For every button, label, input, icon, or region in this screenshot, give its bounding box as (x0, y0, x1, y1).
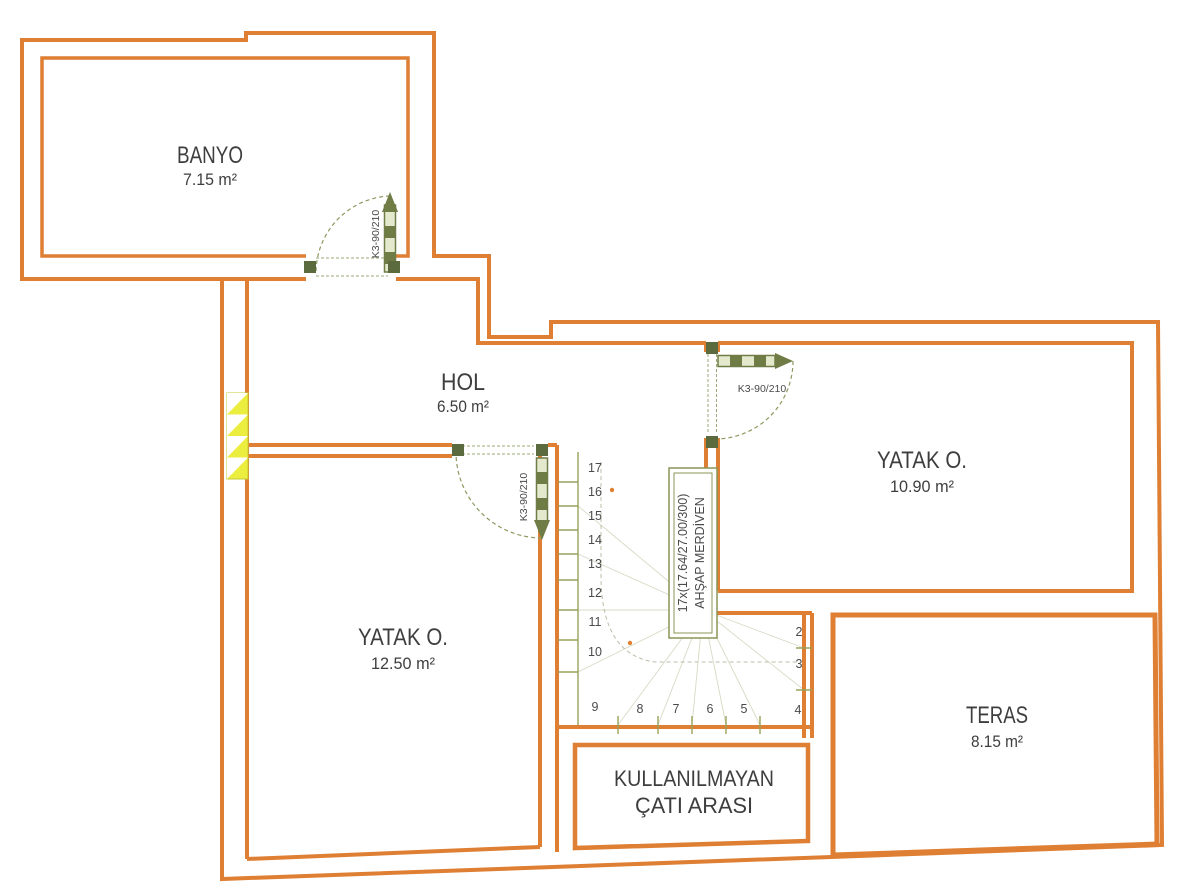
yatak-left-area: 12.50 m² (371, 654, 435, 673)
stair-spec-label: 17x(17.64/27.00/300) (676, 494, 690, 613)
stair-num: 8 (637, 702, 644, 716)
stair-num: 15 (588, 509, 602, 523)
door-post (452, 444, 464, 456)
floor-plan-page: 17x(17.64/27.00/300) AHŞAP MERDİVEN 17 1… (0, 0, 1200, 885)
yatak-right-door: K3-90/210 (706, 342, 793, 448)
banyo-door: K3-90/210 (304, 192, 400, 276)
shaft-hatch (227, 393, 248, 479)
floor-plan-svg: 17x(17.64/27.00/300) AHŞAP MERDİVEN 17 1… (0, 0, 1200, 885)
door-arrow-icon (382, 192, 398, 212)
stair-num: 7 (673, 702, 680, 716)
stair-num: 5 (741, 702, 748, 716)
stair-num: 9 (592, 700, 599, 714)
yatak-left-door-label: K3-90/210 (518, 473, 530, 522)
yatak-right-name: YATAK O. (877, 447, 967, 474)
stair-num: 10 (588, 645, 602, 659)
teras-name: TERAS (966, 702, 1028, 729)
door-post (706, 436, 718, 448)
door-arrow-icon (775, 353, 793, 369)
stair-material-label: AHŞAP MERDİVEN (693, 497, 707, 609)
banyo-door-label: K3-90/210 (370, 210, 382, 259)
stair-num: 3 (796, 657, 803, 671)
banyo-area: 7.15 m² (183, 170, 237, 189)
teras-area: 8.15 m² (971, 732, 1023, 751)
door-post (388, 261, 400, 273)
stair-num: 12 (588, 586, 602, 600)
door-arrow-icon (534, 520, 550, 540)
stair-num: 6 (707, 702, 714, 716)
yatak-right-area: 10.90 m² (890, 477, 954, 496)
attic-line1: KULLANILMAYAN (614, 766, 774, 791)
yatak-left-door: K3-90/210 (452, 444, 550, 540)
stair-num: 4 (795, 703, 802, 717)
door-post (706, 342, 718, 354)
yatak-left-name: YATAK O. (358, 624, 448, 651)
stair-num: 13 (588, 557, 602, 571)
hol-area: 6.50 m² (437, 397, 489, 416)
door-post (304, 261, 316, 273)
room-yatak-right: YATAK O. 10.90 m² (877, 447, 967, 496)
stair-num: 14 (588, 533, 602, 547)
door-post (536, 444, 548, 456)
stair-num: 2 (796, 625, 803, 639)
stair-label-box: 17x(17.64/27.00/300) AHŞAP MERDİVEN (669, 468, 717, 638)
stair-num: 11 (589, 615, 602, 629)
yatak-right-door-label: K3-90/210 (738, 383, 787, 395)
stair-num: 16 (588, 485, 602, 499)
room-yatak-left: YATAK O. 12.50 m² (358, 624, 448, 673)
attic-line2: ÇATI ARASI (635, 793, 753, 818)
stair-num: 17 (588, 461, 602, 475)
hol-name: HOL (441, 369, 485, 396)
banyo-name: BANYO (177, 142, 243, 169)
room-attic: KULLANILMAYAN ÇATI ARASI (614, 766, 774, 818)
room-hol: HOL 6.50 m² (437, 369, 489, 416)
room-labels: BANYO 7.15 m² HOL 6.50 m² YATAK O. 10.90… (177, 142, 1028, 818)
room-banyo: BANYO 7.15 m² (177, 142, 243, 189)
room-teras: TERAS 8.15 m² (966, 702, 1028, 751)
